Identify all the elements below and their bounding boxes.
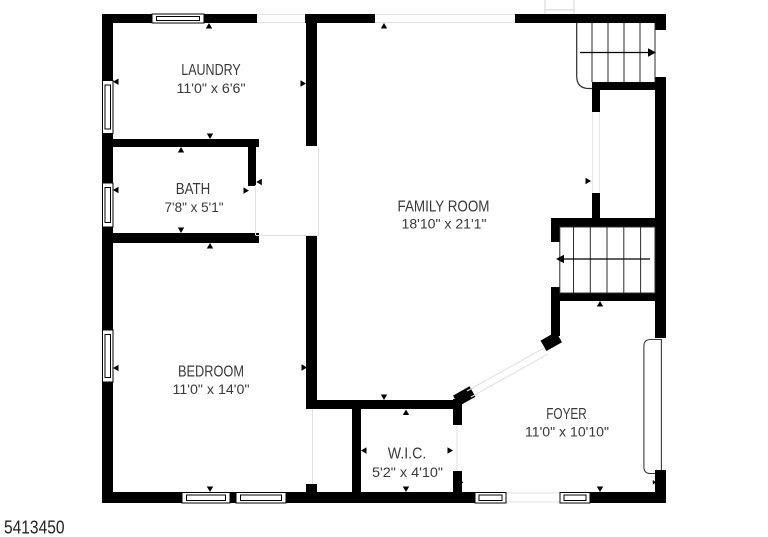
svg-text:W.I.C.: W.I.C. — [388, 446, 427, 463]
svg-text:7'8" x 5'1": 7'8" x 5'1" — [165, 200, 224, 216]
svg-text:BATH: BATH — [176, 181, 211, 198]
svg-text:LAUNDRY: LAUNDRY — [181, 62, 241, 79]
svg-text:FOYER: FOYER — [546, 406, 587, 423]
svg-text:5'2" x 4'10": 5'2" x 4'10" — [372, 465, 443, 481]
svg-text:11'0" x 10'10": 11'0" x 10'10" — [525, 424, 609, 440]
svg-text:18'10" x 21'1": 18'10" x 21'1" — [402, 217, 487, 233]
svg-text:FAMILY ROOM: FAMILY ROOM — [398, 199, 490, 216]
svg-text:5413450: 5413450 — [4, 518, 65, 537]
svg-text:11'0" x 14'0": 11'0" x 14'0" — [173, 382, 250, 398]
svg-text:11'0" x 6'6": 11'0" x 6'6" — [177, 81, 246, 97]
svg-text:BEDROOM: BEDROOM — [178, 364, 244, 381]
